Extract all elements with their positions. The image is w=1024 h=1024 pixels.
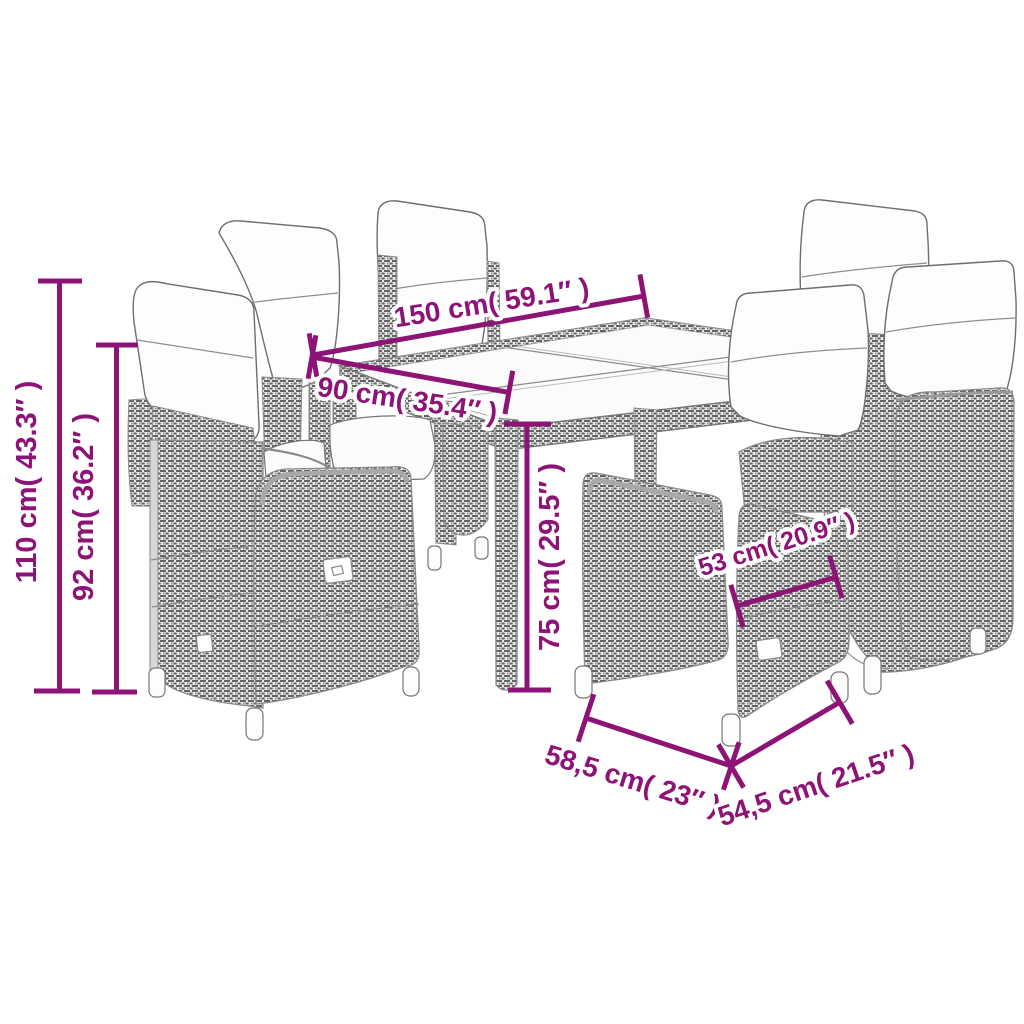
svg-text:110 cm( 43.3″ ): 110 cm( 43.3″ ): [11, 381, 43, 584]
svg-text:92 cm( 36.2″ ): 92 cm( 36.2″ ): [68, 413, 100, 601]
svg-text:75 cm( 29.5″ ): 75 cm( 29.5″ ): [534, 463, 566, 651]
